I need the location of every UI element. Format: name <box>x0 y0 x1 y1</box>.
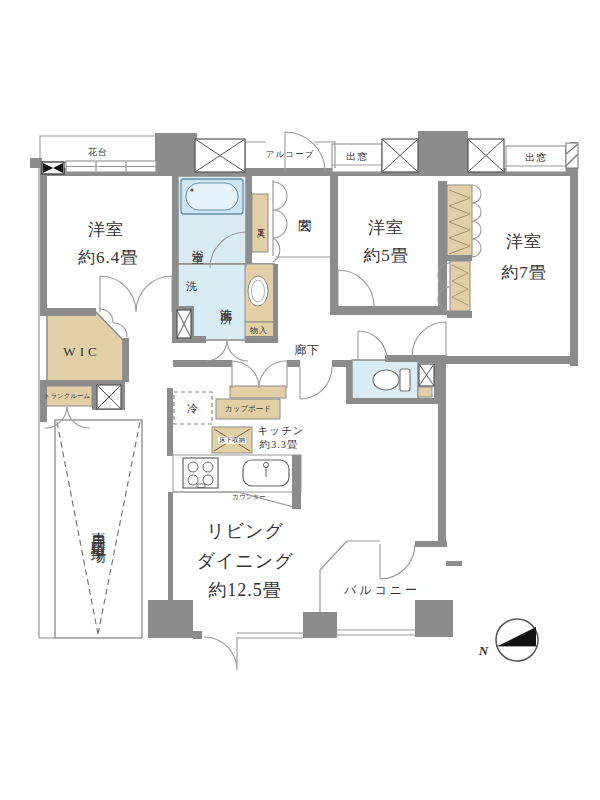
bedroom5-label-2: 約5畳 <box>363 247 409 264</box>
toilet-icon <box>373 370 399 390</box>
closet-upper-doors <box>472 185 481 257</box>
kitchen-label-2: 約3.3畳 <box>259 440 298 451</box>
cupboard-upper-box <box>230 386 286 398</box>
balcony-railing <box>337 630 415 635</box>
shoe-cabinet-label: 下足入 <box>256 222 264 225</box>
floorplan-page: 花台 アルコーブ 出窓 出窓 洋室 約6.4畳 洋室 約5畳 洋室 約7畳 玄関… <box>0 0 600 800</box>
bedroom7-label-2: 約7畳 <box>501 264 547 281</box>
bay-window-left-label: 出窓 <box>346 152 368 162</box>
living-exterior-door <box>204 637 237 670</box>
bedroom64-label-1: 洋室 <box>88 221 124 238</box>
balcony-door <box>380 544 415 579</box>
parking-label: 専用駐車場 <box>91 520 106 540</box>
storage-monoire-label: 物入 <box>250 327 268 335</box>
bedroom7-label-1: 洋室 <box>506 233 542 250</box>
living-label-2: ダイニング <box>196 552 293 570</box>
bedroom5-label-1: 洋室 <box>368 219 404 236</box>
kitchen-label-1: キッチン <box>258 426 305 437</box>
entry-closet-doors <box>273 182 287 262</box>
kitchen-double-door <box>232 361 287 388</box>
cupboard-label: カップボード <box>225 405 271 413</box>
living-window <box>237 633 303 638</box>
washroom-door <box>206 340 248 361</box>
toilet-door <box>358 331 387 360</box>
counter-label: カウンター <box>232 494 265 501</box>
trunk-room-label: トランクルーム <box>44 393 90 400</box>
washer-label: 洗 <box>186 281 198 292</box>
bedroom64-label-2: 約6.4畳 <box>78 249 138 266</box>
compass-icon <box>496 619 538 661</box>
bedroom64-door <box>100 276 172 312</box>
living-label-3: 約12.5畳 <box>208 581 282 599</box>
wic-label: WIC <box>63 345 100 358</box>
washroom-label: 洗面所 <box>220 299 232 305</box>
underfloor-storage-label: 床下収納 <box>218 437 246 444</box>
fridge-label: 冷 <box>187 403 199 414</box>
bedroom7-door <box>412 322 446 356</box>
vanity-sink-icon <box>248 276 268 306</box>
flower-stand-label: 花台 <box>88 148 108 157</box>
balcony-label: バルコニー <box>344 584 420 596</box>
living-label-1: リビング <box>206 522 284 540</box>
bay-window-right-label: 出窓 <box>525 153 547 163</box>
balcony-edge <box>320 541 380 612</box>
hallway-label: 廊下 <box>294 344 320 356</box>
floorplan-drawing <box>0 0 600 800</box>
meter-box <box>418 387 432 397</box>
living-entry-door <box>300 367 332 399</box>
bedroom5-door <box>338 270 374 306</box>
north-label: N <box>479 644 489 657</box>
entrance-label: 玄関 <box>299 208 312 212</box>
alcove-label: アルコーブ <box>266 150 314 159</box>
bath-label: 浴室 <box>192 240 204 244</box>
